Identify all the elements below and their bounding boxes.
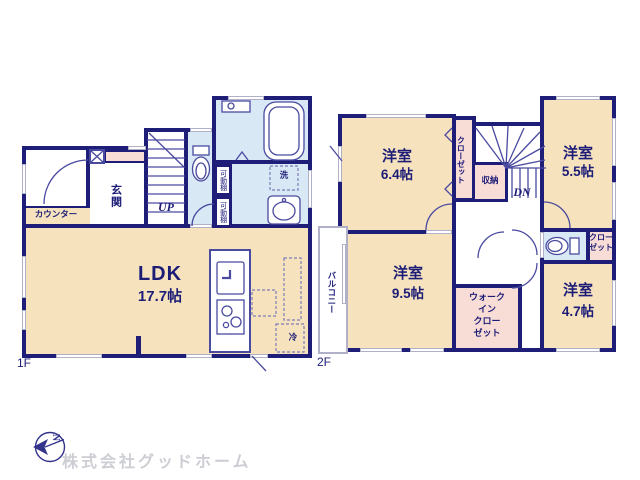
door-opening-mark [190,224,212,228]
terrace-door-mark [250,354,268,358]
wic-label-3: クロー [452,317,522,326]
closet-left-label: クローゼット [456,124,464,196]
movable-shelf-label: 可動棚 [219,202,226,223]
wic-label-2: イン [452,305,522,314]
storage-label: 収納 [472,176,508,185]
window-mark [366,114,426,118]
laundry-label: 洗 [270,171,298,180]
movable-shelf-1: 可動棚 [214,164,232,196]
room-toilet-1f [184,128,216,228]
window-mark [338,146,342,182]
room55-size: 5.5帖 [540,165,616,179]
door-arc [478,232,504,258]
window-mark [308,170,312,208]
wall-segment [136,336,141,358]
closet-right-label-1: クロー [586,234,616,242]
wic-label-1: ウォーク [452,293,522,302]
room95-label: 洋室 [366,266,450,282]
window-mark [556,348,600,352]
window-mark [410,348,444,352]
ldk-size: 17.7帖 [110,289,210,305]
door-arc [512,230,537,255]
movable-shelf-2: 可動棚 [214,196,232,228]
closet-right-label-2: ゼット [586,244,616,252]
room55-label: 洋室 [540,146,616,162]
room95-size: 9.5帖 [366,287,450,301]
stairs-up-label: UP [146,201,186,214]
window-mark [556,96,600,100]
window-mark [22,310,26,330]
floor1-label: 1F [17,357,43,370]
room64-size: 6.4帖 [356,168,438,182]
window-mark [228,96,264,100]
room-bath-1f [212,96,312,164]
room47-size: 4.7帖 [540,305,616,319]
window-mark [22,164,26,194]
ldk-label: LDK [110,264,210,285]
window-mark [186,354,212,358]
room-toilet-2f [540,228,590,264]
shoe-cabinet [104,150,146,163]
window-mark [56,354,102,358]
stairs-down-label: DN [504,186,540,199]
wall-segment [518,348,546,352]
room47-label: 洋室 [540,283,616,299]
balcony-label: バルコニー [327,258,336,326]
counter-label: カウンター [22,210,90,219]
door-opening-mark [426,230,452,234]
company-name: 株式会社グッドホーム [62,448,252,472]
movable-shelf-label: 可動棚 [219,170,226,191]
window-mark [612,182,616,220]
entry-door-mark [128,146,146,150]
wic-label-4: ゼット [452,329,522,338]
floor2-label: 2F [317,356,343,369]
room-storage-1f [22,146,90,210]
window-mark [22,256,26,298]
room64-label: 洋室 [356,149,438,165]
window-mark [190,128,212,132]
balcony-door-mark [342,244,346,304]
compass-north-letter: N [50,434,61,441]
floorplan-canvas: 可動棚 可動棚 [0,0,640,480]
window-mark [540,232,544,258]
fridge-label: 冷 [284,333,302,342]
genkan-label: 玄関 [109,167,121,225]
window-mark [360,348,402,352]
